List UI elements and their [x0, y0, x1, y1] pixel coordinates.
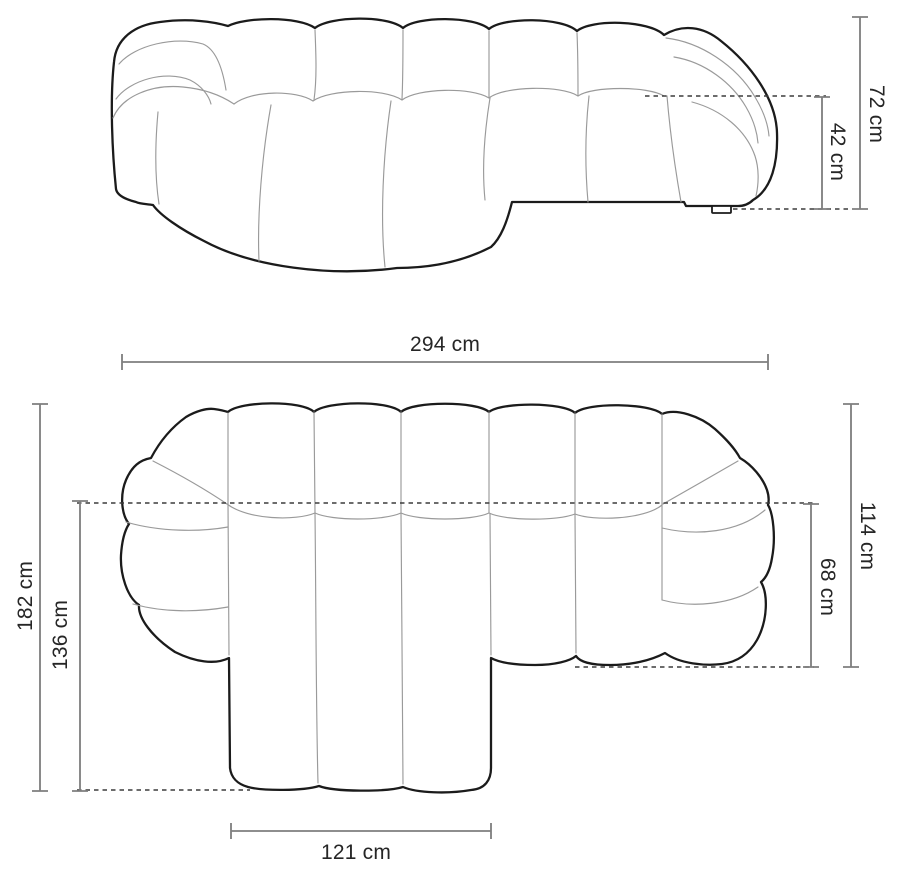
- dim-label-overall-height: 72 cm: [864, 85, 888, 143]
- side-view-foot: [712, 206, 731, 213]
- dim-label-overall-width: 294 cm: [410, 333, 480, 357]
- side-view-outline: [112, 19, 777, 272]
- top-view-drawing: [121, 403, 774, 792]
- dim-label-chaise-width: 121 cm: [321, 841, 391, 865]
- dim-label-chaise-depth: 136 cm: [49, 600, 73, 670]
- dim-line-chaise-width: [231, 823, 491, 839]
- side-view-drawing: [112, 19, 777, 272]
- dim-label-seat-height: 42 cm: [825, 123, 849, 181]
- top-view-outline: [121, 403, 774, 792]
- dim-label-right-side-depth: 114 cm: [855, 502, 879, 571]
- diagram-canvas: [0, 0, 900, 880]
- sofa-dimension-diagram: 72 cm 42 cm 294 cm 182 cm 136 cm 114 cm …: [0, 0, 900, 880]
- dim-label-right-seat-depth: 68 cm: [815, 558, 839, 616]
- dim-line-chaise-depth: [72, 501, 88, 791]
- dim-label-overall-depth: 182 cm: [14, 561, 38, 631]
